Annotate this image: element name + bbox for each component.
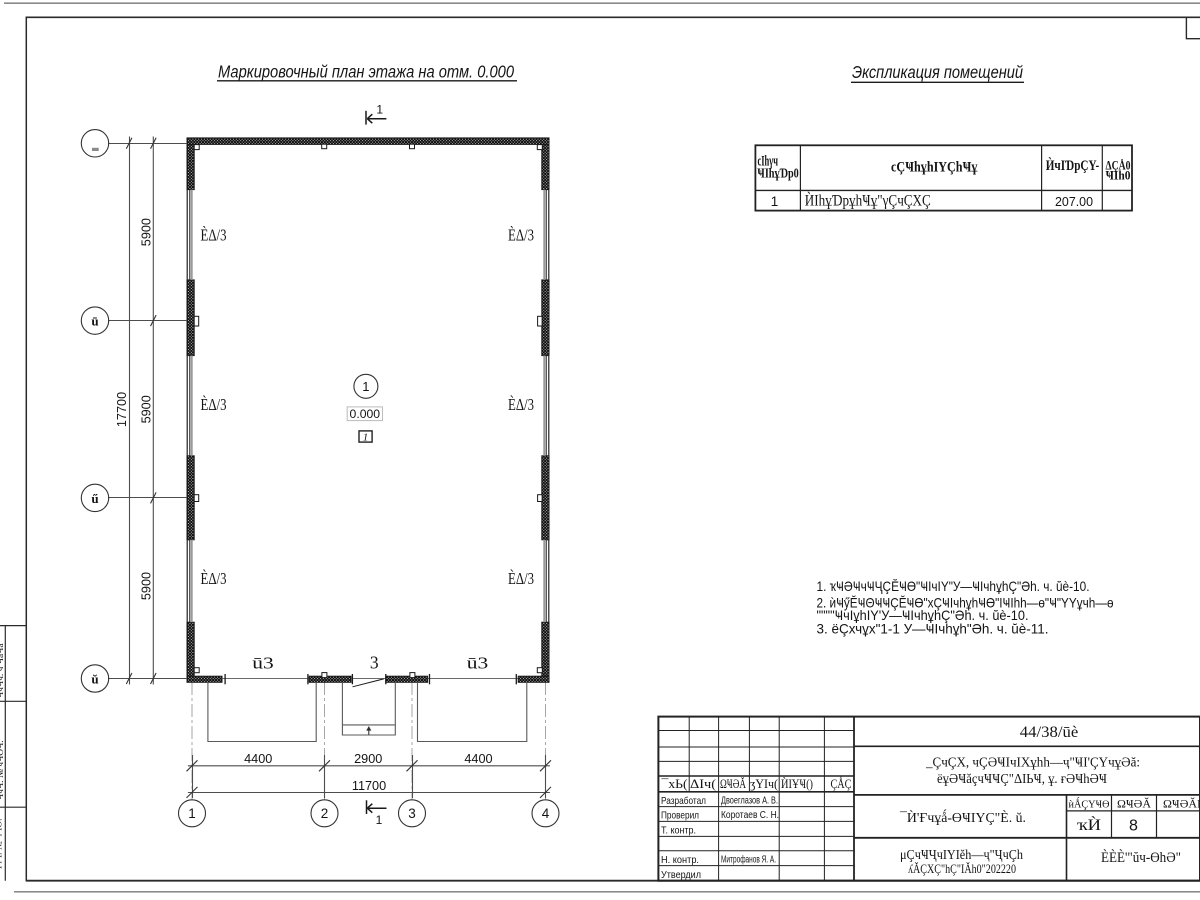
svg-text:5900: 5900 xyxy=(140,572,154,600)
svg-text:4400: 4400 xyxy=(464,752,492,766)
svg-text:5900: 5900 xyxy=(140,218,154,246)
svg-text:Маркировочный план этажа на от: Маркировочный план этажа на отм. 0.000 xyxy=(218,62,514,82)
svg-text:1: 1 xyxy=(376,813,383,827)
svg-text:ÈΔ/3: ÈΔ/3 xyxy=(508,226,534,245)
svg-text:17700: 17700 xyxy=(115,392,129,427)
svg-text:ʒΥΙч(: ʒΥΙч( xyxy=(750,777,778,791)
svg-text:ЧчЧ. № чЧӘ.: ЧчЧ. № чЧӘ. xyxy=(0,818,5,872)
svg-text:Экспликация помещений: Экспликация помещений xyxy=(852,62,1023,82)
svg-text:_ÇчÇХ, чÇӘҸΙчΙХұhh—ҷ"ҸΙ'ÇΥчұӘă: _ÇчÇХ, чÇӘҸΙчΙХұhh—ҷ"ҸΙ'ÇΥчұӘă: xyxy=(925,756,1140,771)
svg-text:Проверил: Проверил xyxy=(661,810,699,822)
svg-text:1: 1 xyxy=(188,806,196,821)
svg-text:3: 3 xyxy=(408,806,416,821)
svg-text:Разработал: Разработал xyxy=(661,795,706,807)
svg-text:ЍчΙƊрÇΥ-: ЍчΙƊрÇΥ- xyxy=(1046,157,1100,174)
svg-text:ҸΙh0: ҸΙh0 xyxy=(1106,168,1131,182)
svg-text:2900: 2900 xyxy=(354,752,382,766)
svg-text:ÈΔ/3: ÈΔ/3 xyxy=(201,569,227,588)
svg-text:ʎǍÇХÇ"hÇ"ΙǍh0"202220: ʎǍÇХÇ"hÇ"ΙǍh0"202220 xyxy=(908,861,1016,876)
svg-text:Н. контр.: Н. контр. xyxy=(661,854,699,866)
svg-text:ЧчЧч. ч ЧăЧă: ЧчЧч. ч ЧăЧă xyxy=(0,643,6,698)
svg-text:ű: ű xyxy=(91,491,98,506)
svg-text:ÈΔ/3: ÈΔ/3 xyxy=(201,395,227,414)
svg-text:44/38/ūè: 44/38/ūè xyxy=(1020,724,1079,741)
svg-text:11700: 11700 xyxy=(352,779,386,793)
svg-text:ÇǺÇ: ÇǺÇ xyxy=(831,775,852,791)
svg-text:1: 1 xyxy=(363,431,369,443)
svg-text:ŭ: ŭ xyxy=(91,672,98,687)
svg-text:3: 3 xyxy=(370,652,379,672)
svg-text:0.000: 0.000 xyxy=(350,407,381,421)
svg-text:ū3: ū3 xyxy=(467,653,489,672)
svg-text:ΩҸӘǍΙΥ: ΩҸӘǍΙΥ xyxy=(1163,797,1200,811)
svg-text:1: 1 xyxy=(771,194,779,209)
svg-text:Митрофанов Я. А.: Митрофанов Я. А. xyxy=(721,853,776,865)
svg-text:ҸΙhұƊр0: ҸΙhұƊр0 xyxy=(757,166,799,181)
svg-text:ёұӘҸăçчҸҸÇ"ΔΙЬҸ, ұ. ғӘҸhӘҸ: ёұӘҸăçчҸҸÇ"ΔΙЬҸ, ұ. ғӘҸhӘҸ xyxy=(937,772,1107,787)
svg-text:ЧчЧ. № чЧӘЧ.: ЧчЧ. № чЧӘЧ. xyxy=(0,740,6,800)
svg-text:ū: ū xyxy=(91,314,98,329)
svg-text:ϲÇҸhұhΙΥÇhҸұ: ϲÇҸhұhΙΥÇhҸұ xyxy=(891,160,978,176)
svg-text:1: 1 xyxy=(376,103,383,117)
svg-text:2: 2 xyxy=(321,806,329,821)
svg-text:5900: 5900 xyxy=(140,395,154,423)
svg-text:1. ҡҸӘҸчҸҶÇĔҸƟ"ҸΙчΙΥ"У—ҸΙчhұhÇ: 1. ҡҸӘҸчҸҶÇĔҸƟ"ҸΙчΙΥ"У—ҸΙчhұhÇ"Әh. ч. ŭè… xyxy=(817,579,1090,594)
svg-text:ҡЍ: ҡЍ xyxy=(1077,817,1101,834)
svg-text:4: 4 xyxy=(542,806,550,821)
svg-text:3. ёÇхчұх"1-1 У—ҸΙчhұh"Әh. ч.: 3. ёÇхчұх"1-1 У—ҸΙчhұh"Әh. ч. ŭè-11. xyxy=(817,622,1049,637)
svg-text:ѝǺÇΥҸƟ: ѝǺÇΥҸƟ xyxy=(1069,797,1110,811)
svg-text:ЍΙҰҸ(): ЍΙҰҸ() xyxy=(781,777,813,791)
svg-text:Двоеглазов А. В.: Двоеглазов А. В. xyxy=(721,795,778,806)
svg-text:ΔΙч(: ΔΙч( xyxy=(690,777,716,791)
svg-text:ЍΙhұƊрұhҸұ"γÇчÇХÇ: ЍΙhұƊрұhҸұ"γÇчÇХÇ xyxy=(805,193,931,210)
svg-text:ÈΔ/3: ÈΔ/3 xyxy=(508,395,534,414)
svg-text:1: 1 xyxy=(362,379,369,394)
svg-text:¯Ѝ'Ғчұǻ-ƟҸΙΥÇ"È. ŭ.: ¯Ѝ'Ғчұǻ-ƟҸΙΥÇ"È. ŭ. xyxy=(899,808,1026,826)
svg-text:¯хЬ(: ¯хЬ( xyxy=(660,777,687,791)
svg-text:8: 8 xyxy=(1129,818,1138,835)
svg-text:ΩҸӘǍ: ΩҸӘǍ xyxy=(1117,797,1151,811)
svg-text:Коротаев С. Н.: Коротаев С. Н. xyxy=(721,810,779,821)
svg-text:ΩҸӘǍ: ΩҸӘǍ xyxy=(720,777,746,791)
svg-text:Т. контр.: Т. контр. xyxy=(661,825,696,837)
svg-text:ÈΔ/3: ÈΔ/3 xyxy=(508,569,534,588)
svg-text:ÈΔ/3: ÈΔ/3 xyxy=(201,226,227,245)
svg-text:4400: 4400 xyxy=(244,752,272,766)
svg-text:ū3: ū3 xyxy=(252,653,274,672)
svg-text:ÈÈÈ'"ŭч-ƟhӘ": ÈÈÈ'"ŭч-ƟhӘ" xyxy=(1101,849,1181,866)
svg-text:207.00: 207.00 xyxy=(1055,194,1093,209)
svg-text:Утвердил: Утвердил xyxy=(661,869,701,881)
